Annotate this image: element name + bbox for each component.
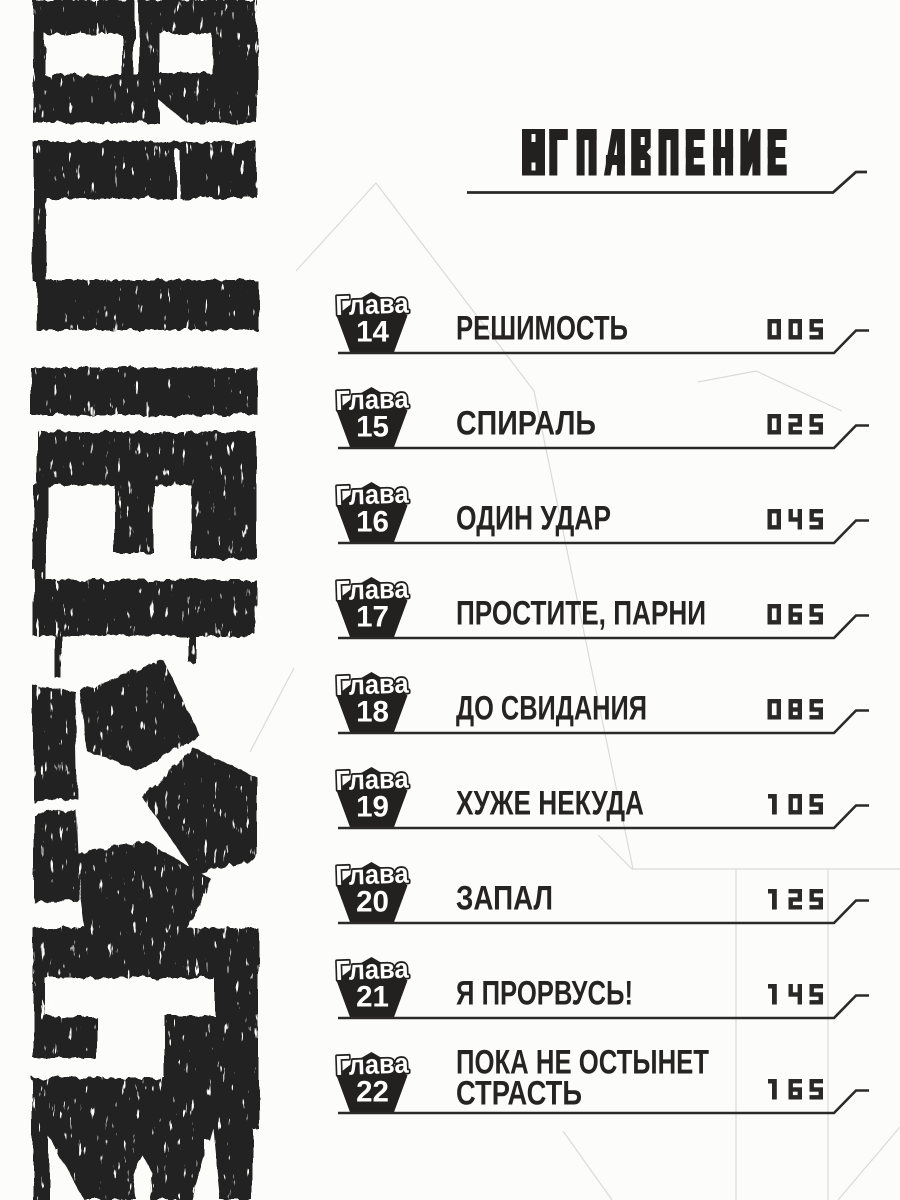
svg-text:14: 14 bbox=[356, 316, 389, 349]
svg-text:ХУЖЕ НЕКУДА: ХУЖЕ НЕКУДА bbox=[456, 785, 644, 823]
svg-text:ДО СВИДАНИЯ: ДО СВИДАНИЯ bbox=[456, 690, 647, 728]
svg-text:15: 15 bbox=[356, 411, 389, 444]
svg-text:ОДИН УДАР: ОДИН УДАР bbox=[456, 500, 611, 538]
svg-text:19: 19 bbox=[356, 791, 389, 824]
svg-text:ЗАПАЛ: ЗАПАЛ bbox=[456, 880, 553, 918]
svg-text:РЕШИМОСТЬ: РЕШИМОСТЬ bbox=[456, 310, 628, 348]
svg-text:ПРОСТИТЕ, ПАРНИ: ПРОСТИТЕ, ПАРНИ bbox=[456, 595, 706, 633]
svg-text:СТРАСТЬ: СТРАСТЬ bbox=[456, 1075, 582, 1113]
svg-text:СПИРАЛЬ: СПИРАЛЬ bbox=[456, 405, 596, 443]
svg-text:22: 22 bbox=[356, 1076, 389, 1109]
svg-text:16: 16 bbox=[356, 506, 389, 539]
svg-text:20: 20 bbox=[356, 886, 389, 919]
svg-text:17: 17 bbox=[356, 601, 389, 634]
svg-text:Я ПРОРВУСЬ!: Я ПРОРВУСЬ! bbox=[456, 975, 633, 1013]
svg-text:21: 21 bbox=[356, 981, 389, 1014]
svg-text:18: 18 bbox=[356, 696, 389, 729]
